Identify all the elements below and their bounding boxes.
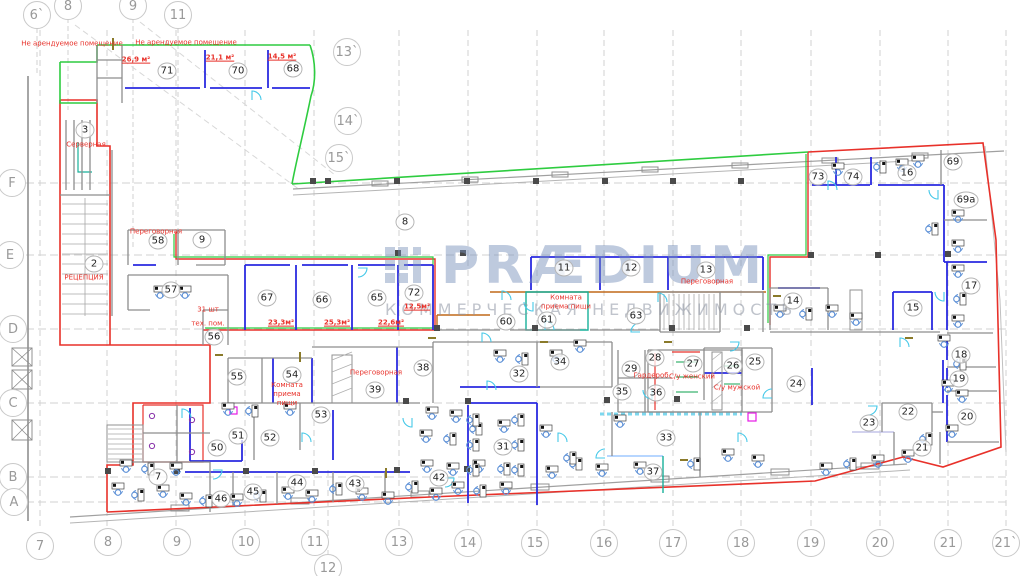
room-bubble-36: 36 bbox=[647, 385, 666, 402]
desk-workstation-icon bbox=[820, 463, 832, 475]
grid-axis-bubble-B: B bbox=[0, 463, 27, 491]
desk-workstation-icon bbox=[132, 489, 144, 501]
grid-axis-bubble-15: 15 bbox=[521, 529, 549, 557]
desk-workstation-icon bbox=[512, 439, 524, 451]
room-bubble-51: 51 bbox=[229, 428, 248, 445]
room-bubble-28: 28 bbox=[646, 350, 665, 367]
red-annotation: Серверная bbox=[66, 141, 106, 150]
desk-workstation-icon bbox=[912, 155, 924, 167]
room-bubble-24: 24 bbox=[787, 376, 806, 393]
desk-workstation-icon bbox=[954, 293, 966, 305]
red-annotation: Комната приема пищи bbox=[271, 381, 303, 407]
room-bubble-52: 52 bbox=[261, 430, 280, 447]
room-bubble-66: 66 bbox=[313, 292, 332, 309]
grid-axis-bubble-16: 16 bbox=[590, 529, 618, 557]
room-bubble-38: 38 bbox=[414, 360, 433, 377]
grid-axis-bubble-C: C bbox=[0, 389, 27, 417]
room-bubble-11: 11 bbox=[555, 260, 574, 277]
desk-workstation-icon bbox=[120, 460, 132, 472]
desk-workstation-icon bbox=[614, 415, 626, 427]
desk-workstation-icon bbox=[494, 350, 506, 362]
room-bubble-18: 18 bbox=[952, 347, 971, 364]
desk-workstation-icon bbox=[774, 305, 786, 317]
red-annotation: 31 шт bbox=[197, 306, 219, 315]
desk-workstation-icon bbox=[800, 308, 812, 320]
grid-axis-bubble-19: 19 bbox=[797, 529, 825, 557]
room-bubble-39: 39 bbox=[366, 382, 385, 399]
room-bubble-27: 27 bbox=[684, 356, 703, 373]
room-bubble-53: 53 bbox=[312, 407, 331, 424]
room-bubble-71: 71 bbox=[158, 63, 177, 80]
desk-workstation-icon bbox=[952, 265, 964, 277]
red-annotation: Переговорная bbox=[130, 228, 182, 237]
red-annotation: 23,3м² bbox=[268, 319, 294, 328]
room-bubble-46: 46 bbox=[212, 491, 231, 508]
room-bubble-15: 15 bbox=[904, 300, 923, 317]
desk-workstation-icon bbox=[516, 353, 528, 365]
grid-axis-bubble-14-prime: 14` bbox=[334, 107, 362, 135]
red-annotation: 22,6м² bbox=[378, 319, 404, 328]
red-annotation: 25,3м² bbox=[324, 319, 350, 328]
grid-axis-bubble-10: 10 bbox=[232, 528, 260, 556]
desk-workstation-icon bbox=[952, 240, 964, 252]
desk-workstation-icon bbox=[306, 490, 318, 502]
desk-workstation-icon bbox=[688, 458, 700, 470]
grid-axis-bubble-17: 17 bbox=[659, 529, 687, 557]
grid-axis-bubble-D: D bbox=[0, 315, 27, 343]
grid-axis-bubble-7: 7 bbox=[26, 532, 54, 560]
grid-axis-bubble-11: 11 bbox=[164, 1, 192, 29]
room-bubble-19: 19 bbox=[950, 371, 969, 388]
desk-workstation-icon bbox=[596, 464, 608, 476]
desk-workstation-icon bbox=[752, 455, 764, 467]
desk-workstation-icon bbox=[926, 223, 938, 235]
grid-axis-bubble-20: 20 bbox=[866, 529, 894, 557]
room-bubble-34: 34 bbox=[551, 354, 570, 371]
floorplan-drawing bbox=[0, 0, 1024, 576]
desk-workstation-icon bbox=[722, 449, 734, 461]
grid-axis-bubble-8: 8 bbox=[94, 528, 122, 556]
desk-workstation-icon bbox=[498, 463, 510, 475]
room-bubble-50: 50 bbox=[208, 440, 227, 457]
desk-workstation-icon bbox=[426, 407, 438, 419]
room-bubble-61: 61 bbox=[538, 312, 557, 329]
room-bubble-42: 42 bbox=[430, 470, 449, 487]
grid-axis-bubble-14: 14 bbox=[454, 529, 482, 557]
desk-workstation-icon bbox=[564, 452, 576, 464]
room-bubble-21: 21 bbox=[913, 440, 932, 457]
desk-workstation-icon bbox=[956, 390, 968, 402]
room-bubble-70: 70 bbox=[229, 63, 248, 80]
grid-axis-bubble-9: 9 bbox=[163, 528, 191, 556]
room-bubble-23: 23 bbox=[860, 415, 879, 432]
room-bubble-68: 68 bbox=[284, 61, 303, 78]
desk-workstation-icon bbox=[574, 340, 586, 352]
red-annotation: С/у женский bbox=[669, 373, 715, 382]
desk-workstation-icon bbox=[421, 460, 433, 472]
room-bubble-35: 35 bbox=[613, 384, 632, 401]
red-annotation: 12,5м² bbox=[404, 303, 430, 312]
room-bubble-60: 60 bbox=[497, 314, 516, 331]
desk-workstation-icon bbox=[447, 463, 459, 475]
room-bubble-31: 31 bbox=[494, 439, 513, 456]
room-bubble-55: 55 bbox=[228, 369, 247, 386]
desk-workstation-icon bbox=[112, 483, 124, 495]
room-bubble-14: 14 bbox=[784, 293, 803, 310]
desk-workstation-icon bbox=[430, 488, 442, 500]
red-annotation: Гардероб bbox=[633, 372, 668, 381]
room-bubble-56: 56 bbox=[205, 329, 224, 346]
grid-axis-bubble-15-prime: 15` bbox=[325, 144, 353, 172]
room-bubble-73: 73 bbox=[809, 169, 828, 186]
room-bubble-17: 17 bbox=[962, 278, 981, 295]
red-annotation: Комната приема пищи bbox=[541, 293, 591, 311]
grid-axis-bubble-21-prime: 21` bbox=[992, 529, 1020, 557]
desk-workstation-icon bbox=[540, 425, 552, 437]
room-bubble-43: 43 bbox=[346, 476, 365, 493]
desk-workstation-icon bbox=[406, 481, 418, 493]
room-bubble-12: 12 bbox=[622, 260, 641, 277]
red-annotation: 14,5 м² bbox=[268, 53, 297, 62]
room-bubble-45: 45 bbox=[244, 484, 263, 501]
room-bubble-16: 16 bbox=[898, 165, 917, 182]
desk-workstation-icon bbox=[444, 433, 456, 445]
room-bubble-22: 22 bbox=[899, 404, 918, 421]
grid-axis-bubble-18: 18 bbox=[727, 529, 755, 557]
room-bubble-44: 44 bbox=[288, 475, 307, 492]
floorplan-page: PRÆDIUM КОММЕРЧЕСКАЯ НЕДВИЖИМОСТЬ 717068… bbox=[0, 0, 1024, 576]
room-bubble-67: 67 bbox=[258, 290, 277, 307]
red-annotation: РЕЦЕПЦИЯ bbox=[64, 274, 103, 283]
desk-workstation-icon bbox=[512, 414, 524, 426]
red-annotation: Не арендуемое помещение bbox=[21, 40, 123, 49]
desk-workstation-icon bbox=[498, 420, 510, 432]
desk-workstation-icon bbox=[179, 286, 191, 298]
desk-workstation-icon bbox=[246, 405, 258, 417]
desk-workstation-icon bbox=[952, 315, 964, 327]
grid-axis-bubble-13-prime: 13` bbox=[333, 38, 361, 66]
grid-axis-bubble-A: A bbox=[0, 488, 28, 516]
grid-axis-bubble-11: 11 bbox=[301, 528, 329, 556]
room-bubble-9: 9 bbox=[193, 232, 212, 249]
room-bubble-7: 7 bbox=[149, 469, 168, 486]
desk-workstation-icon bbox=[546, 466, 558, 478]
room-bubble-26: 26 bbox=[724, 358, 743, 375]
room-bubble-25: 25 bbox=[746, 354, 765, 371]
desk-workstation-icon bbox=[850, 313, 862, 325]
room-bubble-57: 57 bbox=[162, 282, 181, 299]
desk-workstation-icon bbox=[180, 493, 192, 505]
red-annotation: Переговорная bbox=[681, 278, 733, 287]
desk-workstation-icon bbox=[450, 410, 462, 422]
room-bubble-69a: 69a bbox=[954, 192, 979, 209]
room-bubble-72: 72 bbox=[405, 285, 424, 302]
room-bubble-20: 20 bbox=[958, 409, 977, 426]
room-bubble-3: 3 bbox=[76, 122, 95, 139]
red-annotation: Не арендуемое помещение bbox=[135, 39, 237, 48]
room-bubble-32: 32 bbox=[510, 366, 529, 383]
room-bubble-69: 69 bbox=[944, 154, 963, 171]
grid-axis-bubble-21: 21 bbox=[934, 529, 962, 557]
grid-axis-bubble-13: 13 bbox=[385, 528, 413, 556]
room-bubble-8: 8 bbox=[396, 214, 415, 231]
desk-workstation-icon bbox=[330, 483, 342, 495]
room-bubble-2: 2 bbox=[85, 256, 104, 273]
room-bubble-33: 33 bbox=[657, 430, 676, 447]
grid-axis-bubble-6-prime: 6` bbox=[23, 1, 51, 29]
room-bubble-13: 13 bbox=[697, 262, 716, 279]
room-bubble-65: 65 bbox=[368, 290, 387, 307]
desk-workstation-icon bbox=[902, 450, 914, 462]
desk-workstation-icon bbox=[200, 495, 212, 507]
grid-axis-bubble-12: 12 bbox=[314, 554, 342, 576]
red-annotation: Переговорная bbox=[350, 369, 402, 378]
red-annotation: 26,9 м² bbox=[122, 56, 151, 65]
desk-workstation-icon bbox=[512, 464, 524, 476]
desk-workstation-icon bbox=[832, 163, 844, 175]
red-annotation: С/у мужской bbox=[714, 384, 760, 393]
desk-workstation-icon bbox=[420, 430, 432, 442]
room-bubble-37: 37 bbox=[644, 464, 663, 481]
desk-workstation-icon bbox=[157, 485, 169, 497]
room-bubble-63: 63 bbox=[627, 308, 646, 325]
red-annotation: 21,1 м² bbox=[206, 54, 235, 63]
desk-workstation-icon bbox=[500, 482, 512, 494]
room-bubble-74: 74 bbox=[844, 169, 863, 186]
red-annotation: тех. пом. bbox=[191, 320, 224, 329]
